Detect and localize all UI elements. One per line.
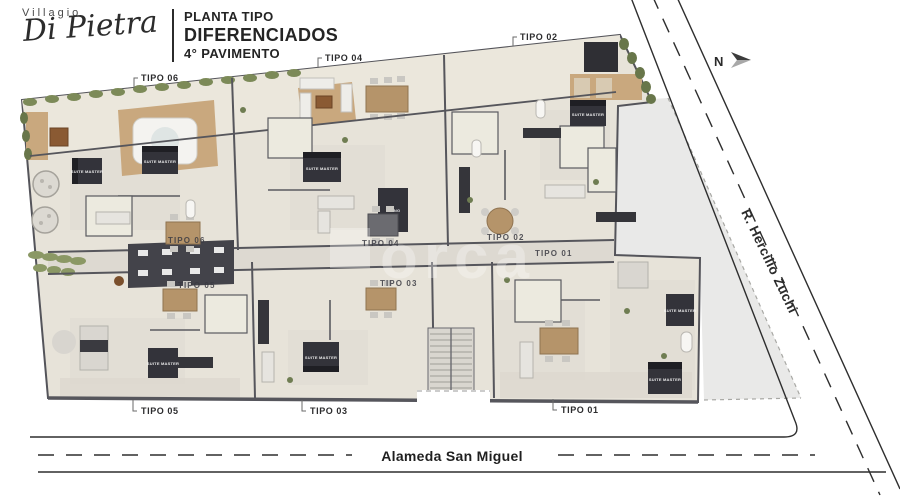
bed-label: SUITE MASTER [664, 308, 696, 313]
building: SUITE MASTER SUITE MASTER SUITE MASTER S… [20, 35, 700, 403]
callout-tipo-01: TIPO01 [561, 405, 599, 415]
bottom-street-label: Alameda San Miguel [381, 448, 523, 464]
unit-label-tipo-02: TIPO 02 [487, 233, 525, 242]
bed-label: SUITE MASTER [649, 377, 681, 382]
setback-recess [417, 390, 490, 403]
north-label: N [714, 54, 723, 69]
callout-tipo-05: TIPO05 [141, 406, 179, 416]
unit-label-tipo-05: TIPO 05 [178, 281, 216, 290]
unit-label-tipo-03: TIPO 03 [380, 279, 418, 288]
north-arrow-icon [731, 52, 751, 60]
grill-box [50, 128, 68, 146]
floor-plan-screenshot: Villagio Di Pietra PLANTA TIPO DIFERENCI… [0, 0, 900, 504]
unit-label-tipo-06: TIPO 06 [168, 236, 206, 245]
staircase [428, 328, 474, 392]
bed-label: SUITE MASTER [147, 361, 179, 366]
bed-label: SUITE MASTER [305, 355, 337, 360]
callout-tipo-03: TIPO03 [310, 406, 348, 416]
unit-label-tipo-01: TIPO 01 [535, 249, 573, 258]
callout-tipo-02: TIPO02 [520, 32, 558, 42]
bed-label: SUITE MASTER [144, 159, 176, 164]
north-arrow: N [714, 52, 751, 69]
callout-tipo-04: TIPO04 [325, 53, 363, 63]
bed-label: SUITE MASTER [71, 169, 103, 174]
bbq-kiosk [584, 42, 618, 72]
terrace-dining-table [366, 86, 408, 112]
bed-label: SUITE MASTER [306, 166, 338, 171]
bed-label: SUITE MASTER [572, 112, 604, 117]
bottom-street: Alameda San Miguel [30, 421, 886, 472]
unit-label-tipo-04: TIPO 04 [362, 239, 400, 248]
callout-tipo-06: TIPO06 [141, 73, 179, 83]
site-plan-svg: R. Hercilio Zuchi Alameda San Miguel N [0, 0, 900, 504]
